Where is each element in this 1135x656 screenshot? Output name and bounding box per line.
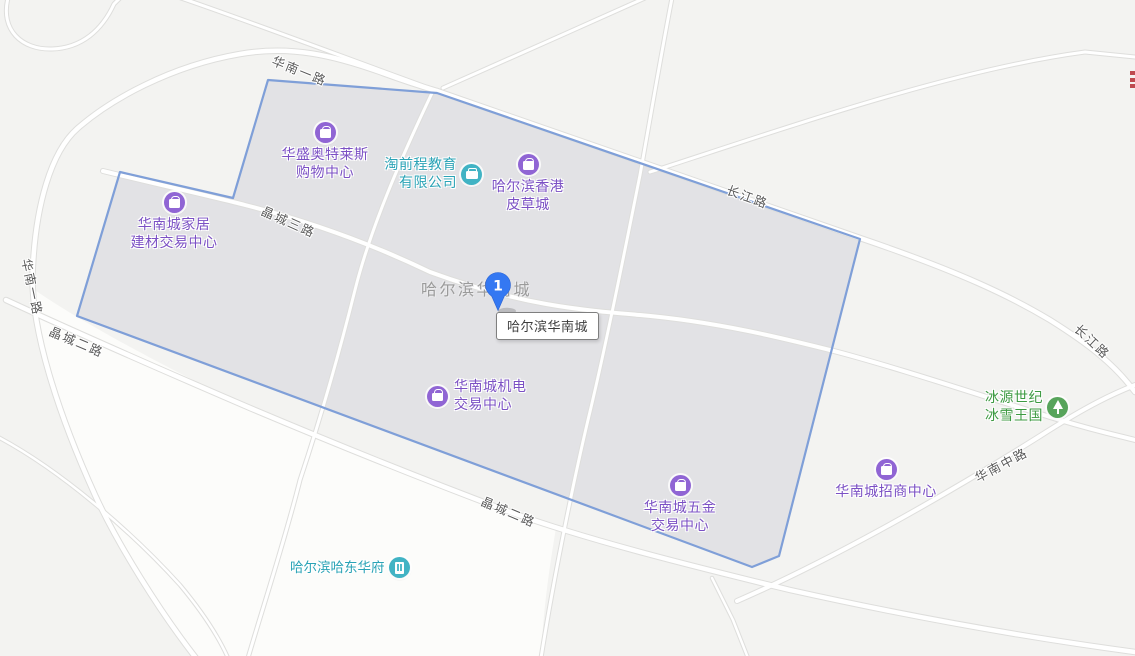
building-icon	[389, 557, 410, 578]
shopping-bag-icon	[518, 154, 539, 175]
poi-label: 哈尔滨香港 皮草城	[492, 178, 565, 214]
poi-label: 淘前程教育 有限公司	[381, 156, 457, 192]
poi-jidian-center[interactable]: 华南城机电 交易中心	[427, 378, 527, 414]
poi-jiaju-jiancai-center[interactable]: 华南城家居 建材交易中心	[128, 192, 220, 252]
poi-label: 哈尔滨哈东华府	[290, 559, 385, 577]
attraction-icon	[1047, 397, 1068, 418]
shopping-bag-icon	[876, 459, 897, 480]
poi-label: 华南城家居 建材交易中心	[131, 216, 218, 252]
poi-label: 华南城机电 交易中心	[454, 378, 527, 414]
map-canvas[interactable]: 华南一路 华南一路 晶城三路 晶城二路 晶城二路 长江路 长江路 华南中路 哈尔…	[0, 0, 1135, 656]
poi-taoqiancheng-education[interactable]: 淘前程教育 有限公司	[381, 156, 482, 192]
poi-harbin-hk-fur-city[interactable]: 哈尔滨香港 皮草城	[482, 154, 574, 214]
poi-hadong-huafu[interactable]: 哈尔滨哈东华府	[290, 557, 410, 578]
poi-zhaoshang-center[interactable]: 华南城招商中心	[828, 459, 944, 501]
poi-huasheng-outlets[interactable]: 华盛奥特莱斯 购物中心	[268, 122, 382, 182]
briefcase-icon	[461, 164, 482, 185]
shopping-bag-icon	[670, 475, 691, 496]
poi-label: 华南城招商中心	[835, 483, 937, 501]
poi-label: 冰源世纪 冰雪王国	[985, 389, 1043, 425]
shopping-bag-icon	[164, 192, 185, 213]
marker-number: 1	[493, 279, 503, 295]
poi-bingxue-kingdom[interactable]: 冰源世纪 冰雪王国	[985, 389, 1068, 425]
marker-tooltip: 哈尔滨华南城	[496, 312, 599, 340]
shopping-bag-icon	[315, 122, 336, 143]
clipped-red-label	[1130, 71, 1135, 91]
shopping-bag-icon	[427, 386, 448, 407]
poi-label: 华盛奥特莱斯 购物中心	[282, 146, 369, 182]
poi-wujin-center[interactable]: 华南城五金 交易中心	[634, 475, 726, 535]
poi-label: 华南城五金 交易中心	[644, 499, 717, 535]
